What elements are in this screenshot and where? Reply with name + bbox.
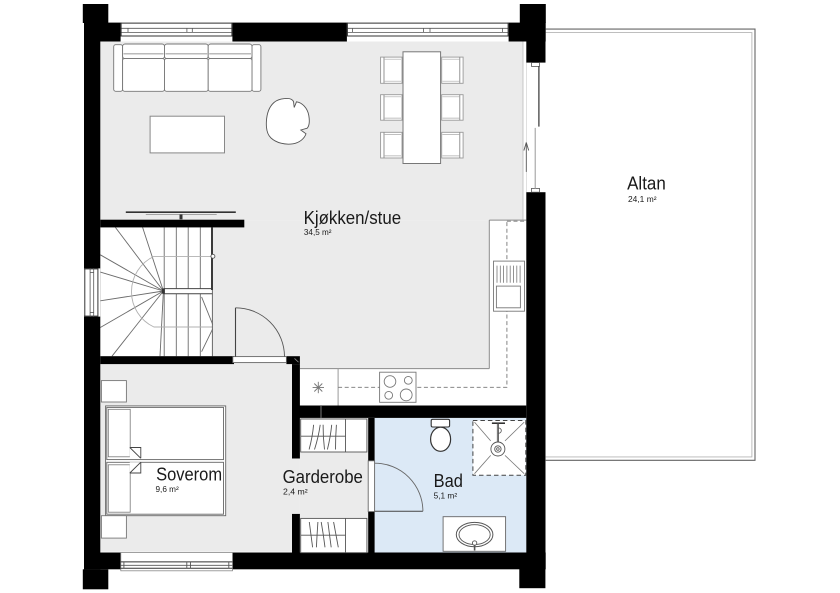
svg-text:Altan: Altan (627, 173, 666, 193)
svg-text:Garderobe: Garderobe (283, 467, 363, 487)
svg-text:5,1 m²: 5,1 m² (434, 492, 458, 501)
svg-text:9,6 m²: 9,6 m² (156, 485, 180, 494)
svg-text:Bad: Bad (434, 471, 463, 491)
svg-text:34,5 m²: 34,5 m² (304, 228, 332, 237)
svg-text:24,1 m²: 24,1 m² (628, 195, 657, 204)
svg-text:2,4 m²: 2,4 m² (283, 487, 308, 496)
svg-text:Kjøkken/stue: Kjøkken/stue (304, 208, 402, 228)
svg-text:Soverom: Soverom (156, 465, 222, 485)
